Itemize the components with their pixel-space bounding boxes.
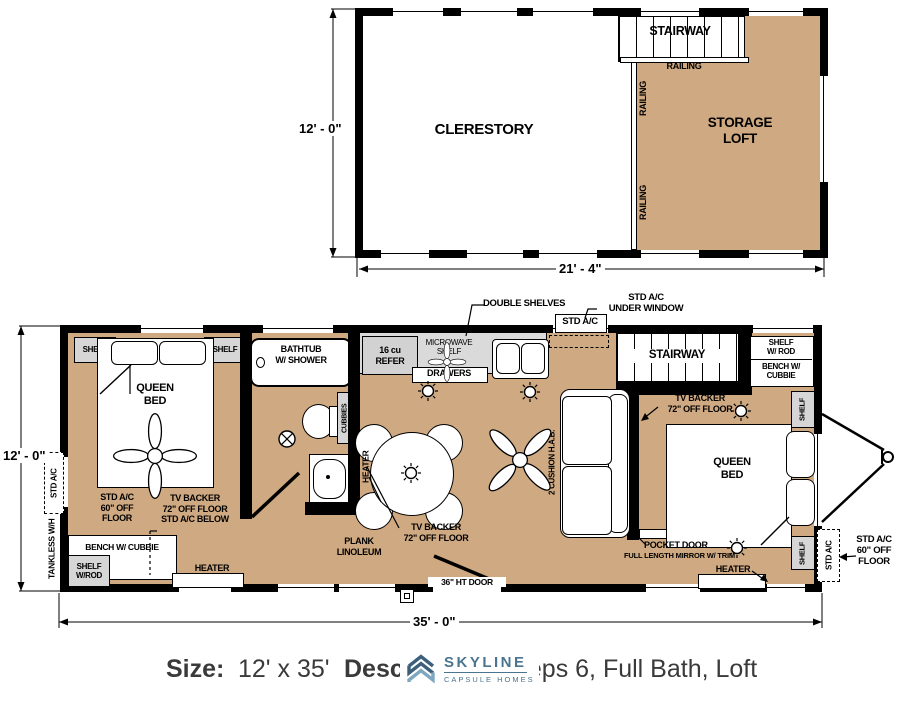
plank-linoleum-label: PLANK LINOLEUM	[326, 536, 392, 557]
std-ac-right-box: STD A/C	[817, 529, 840, 582]
window	[645, 584, 701, 592]
upper-height-dimension: 12' - 0"	[296, 121, 345, 136]
window	[338, 584, 396, 592]
window	[380, 250, 430, 258]
sofa-label: 2 CUSHION H.A.B.	[545, 419, 559, 507]
sofa-cushion	[562, 466, 612, 535]
tv-backer-living-note: TV BACKER 72" OFF FLOOR	[396, 522, 476, 543]
std-ac-top-label: STD A/C	[555, 316, 605, 327]
pillow	[786, 479, 815, 526]
refrigerator: 16 cu REFER	[362, 336, 418, 375]
skyline-logo-name: SKYLINE	[444, 654, 527, 673]
mirror-label: FULL LENGTH MIRROR W/ TRIM	[624, 552, 752, 561]
window	[820, 75, 828, 183]
window	[460, 8, 518, 16]
dining-table	[370, 432, 454, 516]
std-ac-note-1: STD A/C 60" OFF FLOOR	[88, 492, 146, 524]
clerestory-label: CLERESTORY	[428, 121, 540, 139]
storage-loft-label: STORAGE LOFT	[694, 115, 786, 147]
upper-stairway-label: STAIRWAY	[622, 24, 738, 39]
window	[392, 8, 444, 16]
upper-stairway-treads	[618, 16, 745, 62]
queen-bed-1-label: QUEEN BED	[118, 382, 192, 408]
trailer-hitch	[822, 414, 893, 522]
std-ac-right-label: STD A/C	[821, 532, 837, 579]
tankless-wh-label: TANKLESS W/H	[44, 512, 59, 586]
refrigerator-label: 16 cu REFER	[375, 345, 404, 366]
skyline-logo-icon	[404, 652, 438, 686]
floorplan-sheet: STAIRWAY RAILING RAILING RAILING CLEREST…	[0, 0, 920, 704]
shelf-label: SHELF	[794, 539, 812, 567]
shelf-rod-1-label: SHELF W/ROD	[76, 562, 102, 581]
window	[748, 250, 804, 258]
microwave-shelf-label: MICROWAVE SHELF	[420, 338, 478, 357]
double-shelves-note: DOUBLE SHELVES	[483, 298, 583, 309]
std-ac-under-window-unit	[549, 335, 609, 348]
skyline-logo-text: SKYLINE CAPSULE HOMES	[444, 654, 535, 684]
outlet-inner	[404, 593, 410, 599]
heater-2-label: HEATER	[708, 564, 758, 575]
window	[140, 325, 204, 333]
shelf-box: SHELF	[791, 536, 815, 570]
sofa-cushion	[562, 396, 612, 465]
pillow	[786, 431, 815, 478]
shelf-box: SHELF	[791, 391, 815, 428]
railing-vertical-label-2: RAILING	[638, 180, 649, 226]
queen-bed-2-label: QUEEN BED	[698, 456, 766, 482]
window	[640, 250, 700, 258]
sink-bowl	[521, 343, 545, 374]
faucet	[326, 475, 330, 479]
std-ac-under-window-note: STD A/C UNDER WINDOW	[596, 292, 696, 314]
std-ac-right-note: STD A/C 60" OFF FLOOR	[843, 534, 905, 568]
window	[538, 250, 598, 258]
main-width-dimension: 35' - 0"	[410, 614, 459, 629]
queen-bed-2	[666, 424, 792, 548]
std-ac-left-label: STD A/C	[47, 455, 61, 511]
pillow	[159, 341, 206, 365]
storage-loft-floor	[637, 60, 820, 250]
tv-backer-2-note: TV BACKER 72" OFF FLOOR	[658, 393, 742, 414]
main-height-dimension: 12' - 0"	[0, 448, 49, 463]
heater-1-label: HEATER	[182, 563, 242, 574]
pocket-door-label: POCKET DOOR	[644, 540, 724, 551]
window	[640, 8, 700, 16]
railing-horizontal-label: RAILING	[660, 61, 708, 72]
skyline-logo-subtitle: CAPSULE HOMES	[444, 675, 535, 684]
shelf-rod-box-1: SHELF W/ROD	[68, 555, 110, 587]
vanity-sink	[313, 459, 346, 499]
bathtub-label: BATHTUB W/ SHOWER	[260, 344, 342, 365]
upper-width-dimension: 21' - 4"	[556, 261, 605, 276]
heater-1-box	[172, 573, 244, 588]
window	[277, 584, 335, 592]
window	[748, 8, 804, 16]
storage-loft-floor-upper	[743, 16, 820, 60]
bench-cubbie-2-label: BENCH W/ CUBBIE	[750, 362, 812, 381]
window	[752, 325, 814, 333]
window	[262, 325, 334, 333]
window	[766, 584, 806, 592]
railing-vertical	[631, 62, 637, 250]
bath-stub-wall	[305, 502, 352, 515]
sink-bowl	[496, 343, 520, 374]
shelf-label: SHELF	[794, 394, 812, 425]
window	[532, 8, 594, 16]
bench-cubbie-1-label: BENCH W/ CUBBIE	[74, 542, 170, 552]
size-label: Size:	[166, 655, 224, 684]
window	[466, 250, 524, 258]
description-value-fragment: eeps 6, Full Bath, Loft	[514, 655, 757, 684]
main-stairway-label: STAIRWAY	[620, 349, 734, 363]
shelf-rod-2-label: SHELF W/ ROD	[750, 338, 812, 360]
railing-vertical-label-1: RAILING	[638, 76, 649, 122]
tv-backer-note-1: TV BACKER 72" OFF FLOOR STD A/C BELOW	[146, 493, 244, 525]
pillow	[111, 341, 158, 365]
shelf-label: SHELF	[213, 345, 238, 354]
size-value: 12' x 35'	[238, 655, 330, 684]
window	[814, 433, 822, 527]
entry-door-label: 36" HT DOOR	[428, 577, 506, 587]
heater-2-box	[698, 574, 766, 589]
skyline-logo: SKYLINE CAPSULE HOMES	[400, 650, 539, 688]
electrical-outlet-icon	[400, 589, 414, 603]
drawers-label: DRAWERS	[412, 368, 486, 379]
